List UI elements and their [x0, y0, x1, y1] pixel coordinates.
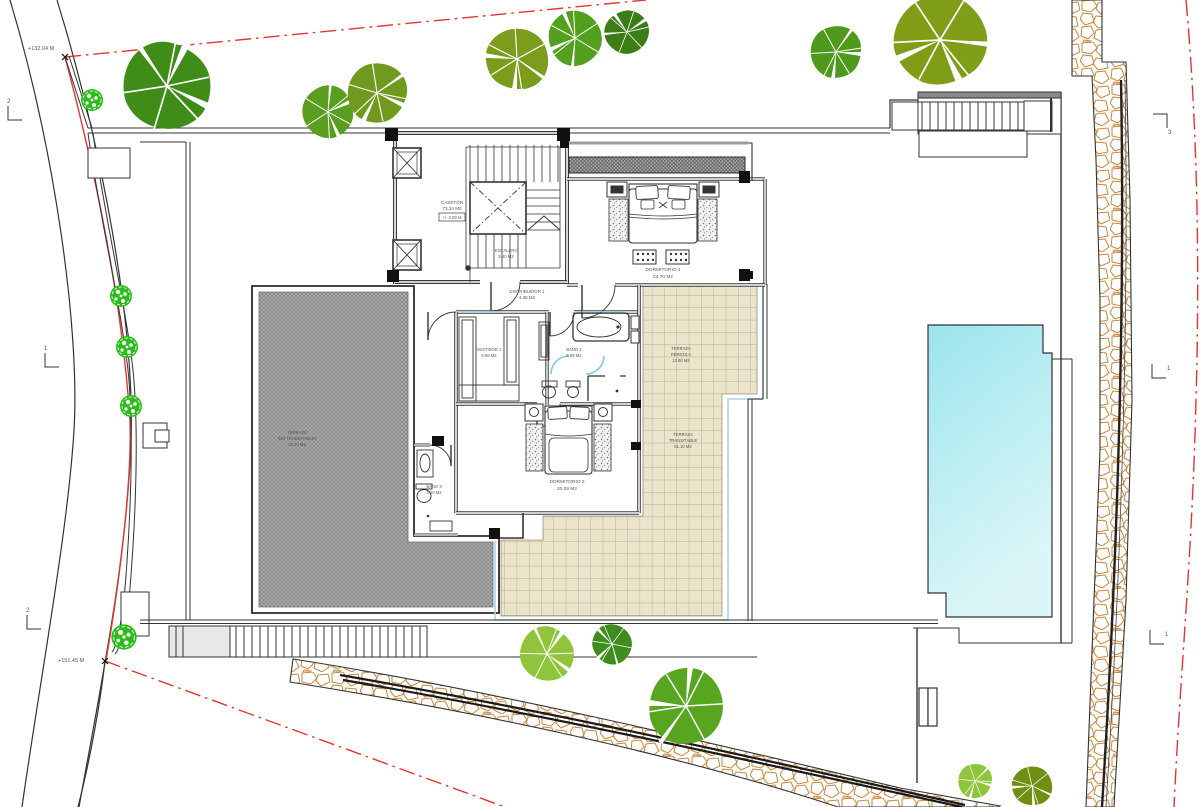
svg-text:VESTIDOR 1: VESTIDOR 1: [477, 347, 503, 352]
svg-text:4.38 M2: 4.38 M2: [519, 295, 535, 300]
svg-text:DORMITORIO 1: DORMITORIO 1: [645, 267, 680, 273]
svg-text:+/- 0.00 M: +/- 0.00 M: [443, 215, 462, 220]
svg-text:BAÑO 3: BAÑO 3: [426, 484, 442, 489]
svg-text:TRANSITABLE: TRANSITABLE: [669, 438, 698, 443]
svg-text:PÉRGOLA: PÉRGOLA: [671, 352, 691, 357]
svg-text:(NO TRANSITABLE): (NO TRANSITABLE): [278, 436, 317, 441]
svg-text:51.10 M2: 51.10 M2: [674, 444, 692, 449]
svg-text:+132.04 M: +132.04 M: [28, 46, 55, 52]
svg-text:TERRAZA: TERRAZA: [671, 346, 691, 351]
svg-text:6.96 M2: 6.96 M2: [481, 353, 497, 358]
svg-text:ESCALERA: ESCALERA: [495, 248, 518, 253]
svg-text:DISTRIBUIDOR 1: DISTRIBUIDOR 1: [509, 289, 545, 294]
svg-text:9.40 M2: 9.40 M2: [498, 254, 514, 259]
svg-text:BAÑO 1: BAÑO 1: [566, 347, 582, 352]
svg-text:TERRAZA: TERRAZA: [673, 432, 693, 437]
svg-text:73.34 M2: 73.34 M2: [442, 206, 462, 211]
svg-text:TERRAZA: TERRAZA: [287, 430, 307, 435]
svg-text:DORMITORIO 2: DORMITORIO 2: [549, 479, 584, 485]
svg-text:4.30 M2: 4.30 M2: [426, 490, 442, 495]
svg-text:CASETÓN: CASETÓN: [441, 199, 463, 205]
svg-text:13.60 M2: 13.60 M2: [672, 358, 690, 363]
svg-text:23.40 M2: 23.40 M2: [288, 442, 306, 447]
svg-text:6.99 M2: 6.99 M2: [566, 353, 582, 358]
svg-text:20.09 M2: 20.09 M2: [557, 486, 577, 492]
svg-text:23.70 M2: 23.70 M2: [653, 274, 673, 280]
svg-text:+151.45 M: +151.45 M: [58, 658, 85, 664]
